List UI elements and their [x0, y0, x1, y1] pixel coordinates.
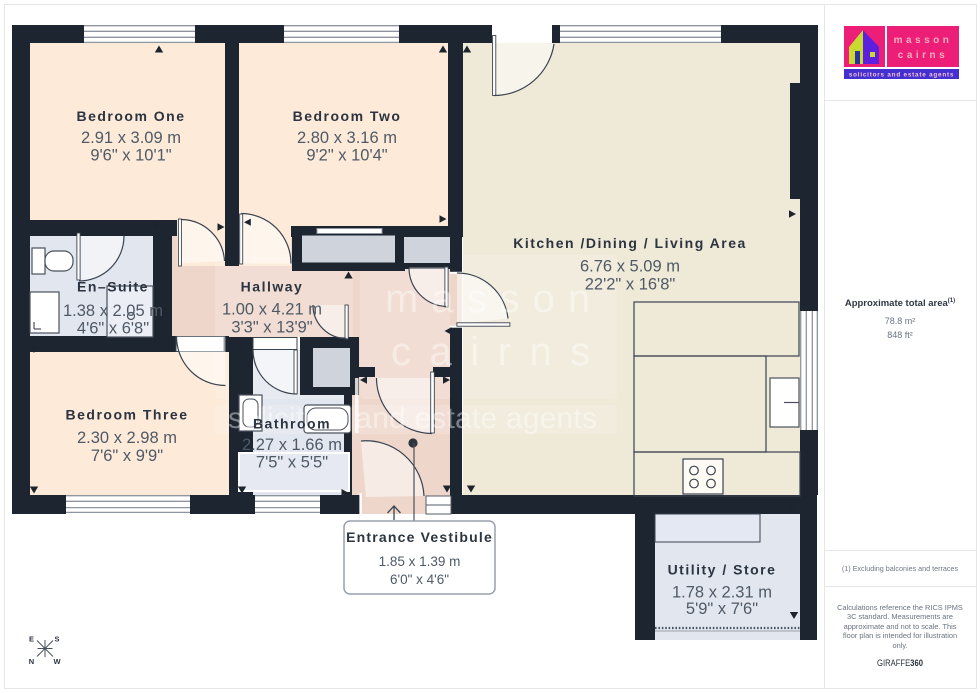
svg-text:masson: masson — [894, 35, 953, 46]
svg-text:solicitors and estate agents: solicitors and estate agents — [849, 72, 954, 79]
svg-text:cairns: cairns — [898, 50, 948, 61]
